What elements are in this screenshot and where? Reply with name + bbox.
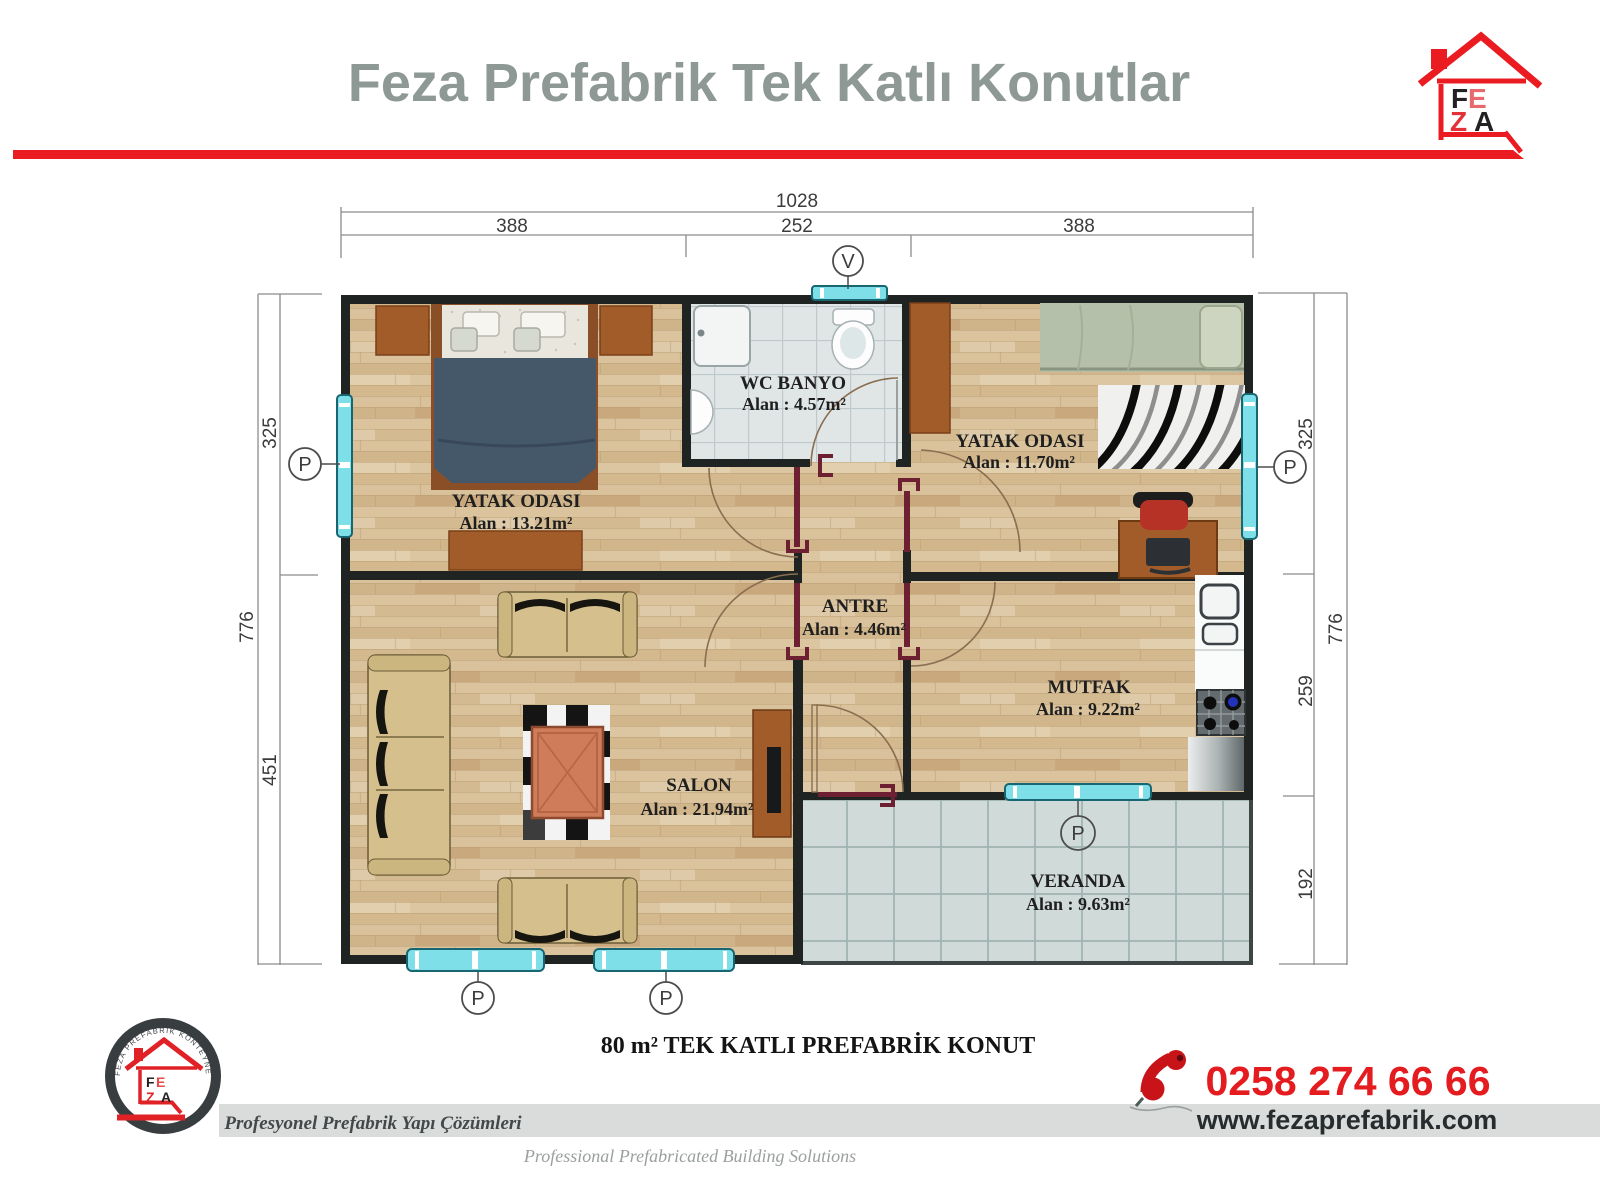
svg-text:Alan : 13.21m²: Alan : 13.21m² (460, 513, 573, 533)
svg-text:325: 325 (1296, 418, 1317, 450)
svg-text:252: 252 (781, 216, 813, 237)
svg-text:A: A (1474, 106, 1494, 137)
svg-text:F: F (146, 1074, 155, 1090)
svg-text:Professional Prefabricated Bui: Professional Prefabricated Building Solu… (523, 1146, 856, 1166)
svg-text:Alan : 21.94m²: Alan : 21.94m² (641, 799, 754, 819)
svg-text:Feza Prefabrik Tek Katlı Konut: Feza Prefabrik Tek Katlı Konutlar (348, 53, 1190, 113)
svg-text:P: P (298, 454, 311, 476)
svg-text:Alan : 4.46m²: Alan : 4.46m² (802, 619, 906, 639)
svg-text:VERANDA: VERANDA (1031, 871, 1126, 892)
svg-text:YATAK ODASI: YATAK ODASI (956, 431, 1085, 452)
svg-text:388: 388 (1063, 216, 1095, 237)
svg-text:www.fezaprefabrik.com: www.fezaprefabrik.com (1196, 1105, 1498, 1135)
svg-text:80 m² TEK KATLI PREFABRİK KONU: 80 m² TEK KATLI PREFABRİK KONUT (601, 1033, 1036, 1059)
svg-text:Alan : 4.57m²: Alan : 4.57m² (742, 394, 846, 414)
svg-text:ANTRE: ANTRE (822, 596, 889, 617)
svg-text:WC BANYO: WC BANYO (740, 373, 846, 394)
svg-text:MUTFAK: MUTFAK (1047, 677, 1130, 698)
svg-text:388: 388 (496, 216, 528, 237)
svg-text:P: P (1071, 823, 1084, 845)
svg-text:P: P (659, 988, 672, 1010)
svg-text:0258 274 66 66: 0258 274 66 66 (1206, 1058, 1491, 1104)
svg-text:Z: Z (1450, 106, 1467, 137)
svg-text:325: 325 (260, 417, 281, 449)
svg-text:P: P (1283, 457, 1296, 479)
svg-text:FEZA PREFABRIK KONTEYNER SAN.: FEZA PREFABRIK KONTEYNER SAN. TIC. LTD. … (0, 0, 213, 1076)
svg-text:YATAK ODASI: YATAK ODASI (452, 491, 581, 512)
svg-text:Z: Z (146, 1089, 155, 1105)
svg-text:A: A (161, 1089, 171, 1105)
svg-text:192: 192 (1296, 868, 1317, 900)
svg-text:E: E (156, 1074, 165, 1090)
svg-text:Alan : 11.70m²: Alan : 11.70m² (963, 452, 1075, 472)
svg-text:Profesyonel Prefabrik Yapı Çöz: Profesyonel Prefabrik Yapı Çözümleri (223, 1113, 522, 1134)
svg-text:Alan : 9.63m²: Alan : 9.63m² (1026, 894, 1130, 914)
svg-text:451: 451 (260, 754, 281, 786)
svg-text:Alan : 9.22m²: Alan : 9.22m² (1036, 699, 1140, 719)
svg-text:P: P (471, 988, 484, 1010)
svg-text:259: 259 (1296, 675, 1317, 707)
svg-text:776: 776 (1326, 613, 1347, 645)
svg-text:776: 776 (237, 611, 258, 643)
svg-text:SALON: SALON (666, 775, 732, 796)
svg-text:V: V (841, 251, 855, 273)
svg-text:1028: 1028 (776, 191, 818, 212)
